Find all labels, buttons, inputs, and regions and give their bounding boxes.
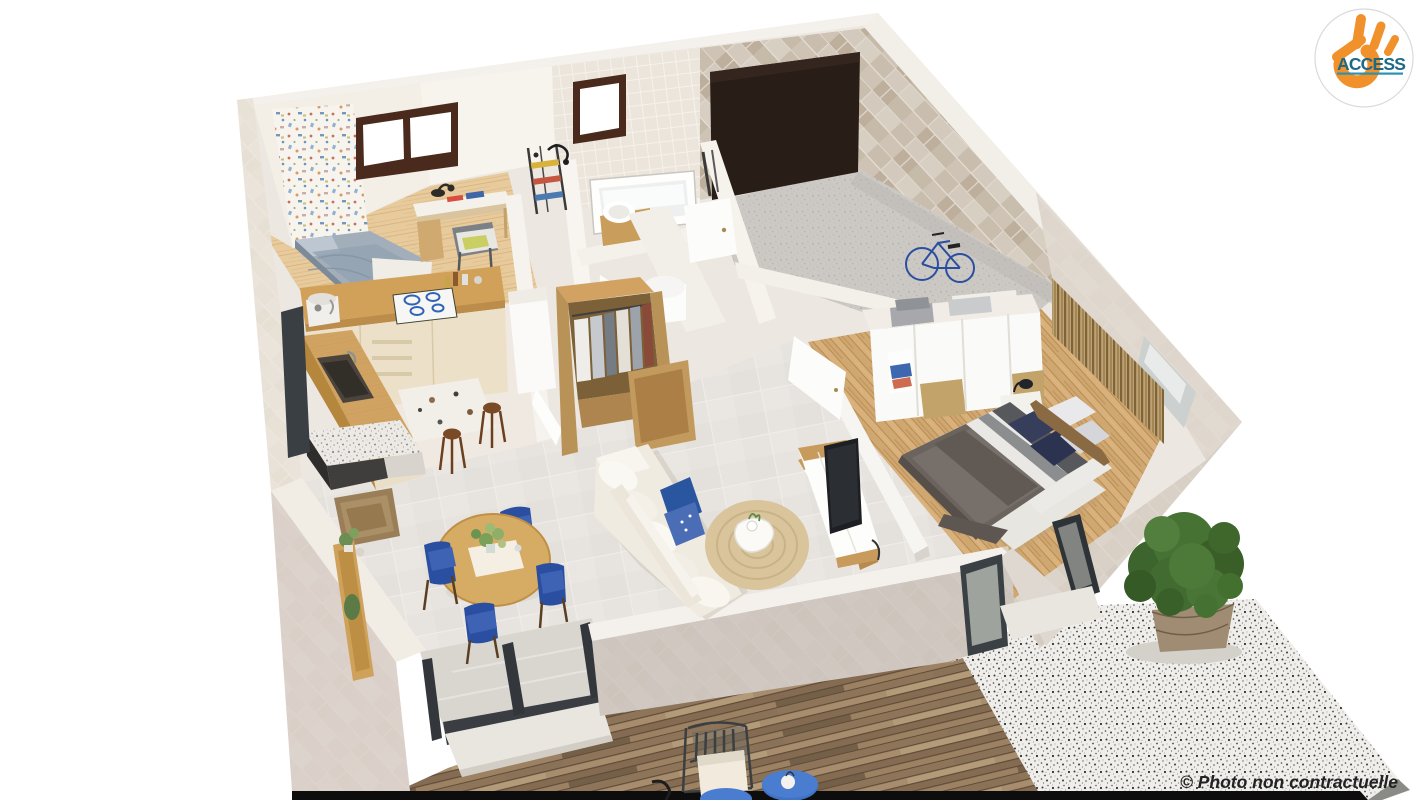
svg-text:ACCESS: ACCESS xyxy=(1337,54,1405,74)
svg-text:© Photo non contractuelle: © Photo non contractuelle xyxy=(1180,772,1398,792)
